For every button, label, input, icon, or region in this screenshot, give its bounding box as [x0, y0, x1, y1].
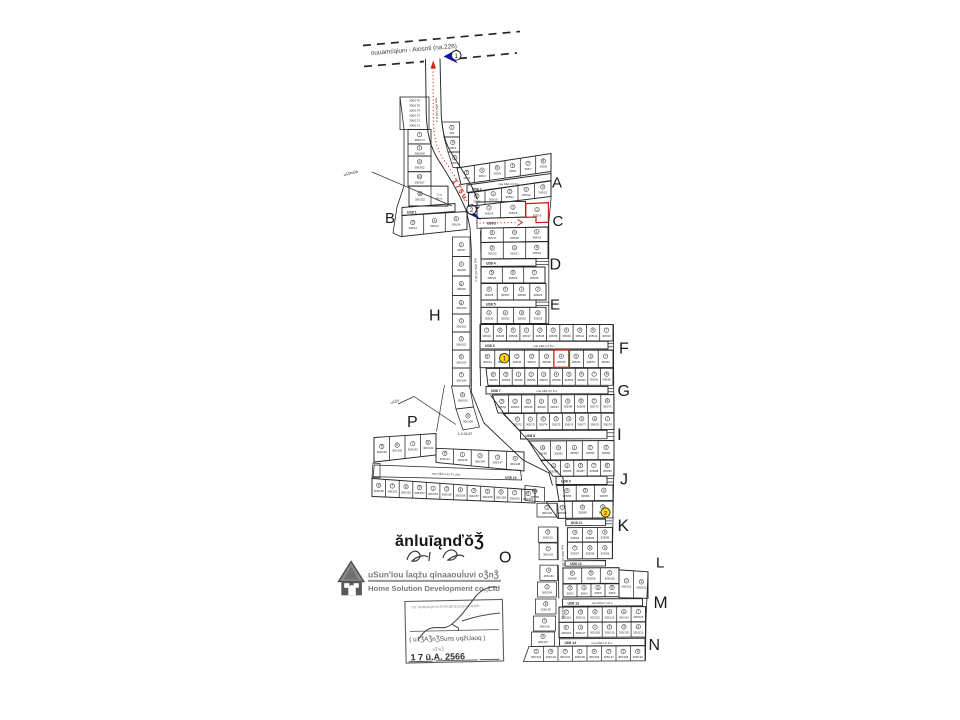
svg-text:5: 5 — [455, 217, 457, 221]
svg-text:1: 1 — [492, 192, 494, 196]
svg-text:5: 5 — [585, 489, 587, 493]
svg-text:UD8 11: UD8 11 — [571, 521, 582, 525]
svg-text:8: 8 — [492, 372, 494, 376]
svg-text:7: 7 — [564, 650, 566, 654]
svg-text:305/89: 305/89 — [603, 469, 612, 473]
svg-text:305/113: 305/113 — [605, 615, 615, 619]
svg-text:6: 6 — [603, 488, 605, 492]
svg-text:8: 8 — [571, 571, 573, 575]
svg-text:305/126: 305/126 — [589, 655, 600, 659]
svg-text:305/89: 305/89 — [578, 511, 587, 515]
svg-text:7: 7 — [607, 417, 609, 421]
svg-text:305/119: 305/119 — [605, 631, 615, 635]
svg-text:8: 8 — [460, 301, 462, 305]
svg-text:UD8 12: UD8 12 — [570, 562, 582, 566]
svg-text:5: 5 — [575, 354, 577, 358]
svg-text:305/112: 305/112 — [590, 616, 600, 620]
svg-text:305/84: 305/84 — [602, 451, 611, 455]
svg-text:305/36: 305/36 — [509, 334, 518, 338]
svg-text:1: 1 — [419, 146, 421, 150]
svg-text:305/83: 305/83 — [586, 451, 595, 455]
svg-text:7: 7 — [608, 650, 610, 654]
svg-text:306/104: 306/104 — [456, 379, 467, 383]
svg-text:1: 1 — [451, 126, 453, 130]
svg-text:nuu AftA.: nuu AftA. — [561, 607, 565, 620]
svg-text:4: 4 — [514, 456, 516, 460]
svg-text:UD8 7: UD8 7 — [491, 389, 501, 393]
svg-text:1: 1 — [536, 230, 538, 234]
svg-text:9: 9 — [467, 414, 469, 418]
svg-text:4: 4 — [481, 168, 483, 172]
svg-text:4: 4 — [566, 328, 568, 332]
svg-text:306/146: 306/146 — [475, 459, 486, 463]
svg-text:6: 6 — [581, 372, 583, 376]
svg-text:9: 9 — [514, 230, 516, 234]
svg-text:4: 4 — [452, 141, 454, 145]
svg-text:306/144: 306/144 — [440, 457, 451, 461]
svg-text:305/125: 305/125 — [575, 655, 586, 659]
svg-text:3: 3 — [497, 455, 499, 459]
svg-text:305/55: 305/55 — [514, 378, 523, 382]
svg-text:P: P — [407, 414, 418, 431]
svg-text:9: 9 — [419, 486, 421, 490]
svg-text:4: 4 — [593, 650, 595, 654]
svg-text:UD8 13: UD8 13 — [568, 601, 580, 605]
svg-text:8: 8 — [488, 287, 490, 291]
svg-text:305/10: 305/10 — [489, 197, 498, 201]
svg-text:1: 1 — [574, 446, 576, 450]
svg-text:nuu AftA.n31 6 u.: nuu AftA.n31 6 u. — [434, 98, 439, 123]
svg-text:3: 3 — [623, 625, 625, 629]
svg-text:2: 2 — [609, 625, 611, 629]
svg-text:305/5: 305/5 — [595, 591, 602, 595]
svg-text:306/158: 306/158 — [482, 495, 493, 499]
svg-text:UD8 9: UD8 9 — [561, 479, 571, 483]
svg-text:305/69: 305/69 — [577, 405, 586, 409]
svg-text:1: 1 — [518, 372, 520, 376]
svg-text:7: 7 — [514, 491, 516, 495]
svg-text:7: 7 — [412, 442, 414, 446]
svg-text:306/154: 306/154 — [428, 492, 439, 496]
svg-text:8: 8 — [527, 492, 529, 496]
svg-text:5: 5 — [460, 355, 462, 359]
svg-text:305/101: 305/101 — [621, 585, 632, 589]
svg-text:305/15: 305/15 — [509, 211, 518, 215]
svg-text:2: 2 — [539, 328, 541, 332]
svg-text:306/153: 306/153 — [414, 491, 425, 495]
svg-text:nuu AftA.n'i'i 8 u.: nuu AftA.n'i'i 8 u. — [533, 344, 555, 348]
svg-text:305/24: 305/24 — [509, 276, 518, 280]
svg-text:9: 9 — [512, 328, 514, 332]
svg-text:305/77: 305/77 — [578, 422, 587, 426]
svg-text:E: E — [550, 297, 560, 314]
svg-text:8: 8 — [589, 546, 591, 550]
svg-text:UD8 3: UD8 3 — [487, 222, 496, 226]
svg-text:305/32: 305/32 — [517, 316, 526, 320]
svg-text:2: 2 — [479, 454, 481, 458]
svg-text:305/29: 305/29 — [534, 293, 543, 297]
svg-text:9: 9 — [517, 417, 519, 421]
svg-text:6: 6 — [580, 399, 582, 403]
svg-text:305/4: 305/4 — [479, 174, 486, 178]
svg-text:4: 4 — [560, 354, 562, 358]
svg-text:305/98: 305/98 — [586, 552, 595, 556]
svg-text:306/14: 306/14 — [452, 222, 461, 226]
svg-text:O: O — [499, 550, 511, 567]
svg-text:9: 9 — [505, 287, 507, 291]
svg-text:5: 5 — [581, 417, 583, 421]
svg-text:306/132: 306/132 — [543, 552, 554, 556]
svg-text:9: 9 — [419, 160, 421, 164]
svg-text:306/100: 306/100 — [456, 306, 467, 310]
svg-text:305/52: 305/52 — [601, 360, 610, 364]
svg-text:4: 4 — [542, 185, 544, 189]
svg-text:305/66: 305/66 — [537, 405, 546, 409]
svg-text:306/173: 306/173 — [409, 114, 420, 118]
svg-text:305/65: 305/65 — [524, 405, 533, 409]
svg-text:J: J — [620, 472, 628, 489]
svg-text:305/96: 305/96 — [601, 536, 610, 540]
svg-text:306/176: 306/176 — [409, 99, 420, 103]
svg-text:2: 2 — [531, 354, 533, 358]
svg-text:2: 2 — [537, 287, 539, 291]
svg-text:1: 1 — [579, 650, 581, 654]
svg-text:306/136: 306/136 — [539, 625, 550, 629]
svg-text:4: 4 — [555, 372, 557, 376]
svg-text:305/95: 305/95 — [586, 536, 595, 540]
svg-text:306/151: 306/151 — [387, 490, 398, 494]
svg-text:nuu AftA.n'i'i 8 u.: nuu AftA.n'i'i 8 u. — [498, 182, 520, 186]
svg-text:305/42: 305/42 — [589, 334, 598, 338]
svg-text:306/97: 306/97 — [457, 248, 466, 252]
svg-text:A: A — [552, 175, 562, 192]
svg-text:306/157: 306/157 — [414, 180, 425, 184]
svg-text:306/150: 306/150 — [374, 489, 385, 493]
svg-text:305/123: 305/123 — [546, 655, 557, 659]
svg-text:1: 1 — [622, 650, 624, 654]
svg-text:305/56: 305/56 — [527, 378, 536, 382]
svg-text:2: 2 — [530, 372, 532, 376]
svg-text:305/68: 305/68 — [564, 405, 573, 409]
svg-text:8: 8 — [607, 399, 609, 403]
svg-text:1: 1 — [460, 319, 462, 323]
svg-text:305/31: 305/31 — [501, 316, 510, 320]
svg-text:5: 5 — [566, 464, 568, 468]
svg-text:7: 7 — [574, 546, 576, 550]
svg-text:6: 6 — [396, 443, 398, 447]
svg-text:2: 2 — [470, 207, 474, 214]
svg-text:305/73: 305/73 — [526, 423, 535, 427]
svg-text:D: D — [550, 257, 562, 274]
svg-text:7: 7 — [486, 328, 488, 332]
svg-text:7: 7 — [561, 505, 563, 509]
svg-text:305/70: 305/70 — [590, 405, 599, 409]
svg-text:306/147: 306/147 — [493, 461, 504, 465]
svg-text:305/102: 305/102 — [636, 586, 647, 590]
svg-text:305/120: 305/120 — [619, 631, 630, 635]
svg-text:305/21: 305/21 — [510, 251, 519, 255]
svg-text:306/103: 306/103 — [456, 361, 467, 365]
svg-text:9: 9 — [505, 372, 507, 376]
svg-text:306/134: 306/134 — [542, 591, 553, 595]
svg-text:7: 7 — [460, 373, 462, 377]
svg-text:1: 1 — [488, 206, 490, 210]
svg-text:306/157: 306/157 — [469, 494, 480, 498]
svg-text:nuu AftA.n3 18 u.: nuu AftA.n3 18 u. — [561, 545, 566, 570]
svg-text:9: 9 — [444, 452, 446, 456]
svg-text:7: 7 — [544, 619, 546, 623]
svg-text:306/171: 306/171 — [409, 124, 420, 128]
svg-text:306/159: 306/159 — [496, 496, 507, 500]
svg-text:305/122: 305/122 — [531, 655, 542, 659]
svg-text:305/62: 305/62 — [602, 378, 611, 382]
svg-text:7: 7 — [533, 271, 535, 275]
svg-text:7: 7 — [606, 328, 608, 332]
svg-text:UD8 14: UD8 14 — [565, 641, 577, 645]
svg-text:9: 9 — [558, 446, 560, 450]
svg-text:6: 6 — [580, 464, 582, 468]
svg-text:UD8 5: UD8 5 — [486, 302, 496, 306]
svg-text:1: 1 — [516, 354, 518, 358]
svg-text:305/57: 305/57 — [539, 378, 548, 382]
svg-text:4: 4 — [548, 568, 550, 572]
svg-text:305/75: 305/75 — [552, 423, 561, 427]
svg-text:305/82: 305/82 — [570, 451, 579, 455]
svg-text:1: 1 — [432, 486, 434, 490]
svg-text:305/37: 305/37 — [522, 334, 531, 338]
svg-text:306/13: 306/13 — [430, 224, 439, 228]
svg-text:306/156: 306/156 — [455, 493, 466, 497]
svg-text:306/168: 306/168 — [414, 152, 425, 156]
svg-text:305/71: 305/71 — [603, 405, 612, 409]
svg-text:305/116: 305/116 — [561, 631, 571, 635]
svg-text:B: B — [385, 210, 395, 227]
svg-text:305/6: 305/6 — [509, 169, 516, 173]
svg-text:8: 8 — [542, 446, 544, 450]
svg-text:305/39: 305/39 — [549, 334, 558, 338]
svg-text:306/161: 306/161 — [523, 497, 534, 501]
svg-text:7: 7 — [527, 161, 529, 165]
svg-text:2: 2 — [604, 511, 607, 517]
svg-text:2: 2 — [547, 530, 549, 534]
svg-text:6: 6 — [611, 586, 613, 590]
svg-text:6: 6 — [460, 282, 462, 286]
svg-text:ănluīąnďŏǮ: ănluīąnďŏǮ — [395, 530, 484, 550]
svg-text:305/127: 305/127 — [604, 655, 615, 659]
svg-text:8: 8 — [405, 485, 407, 489]
svg-text:1: 1 — [546, 506, 548, 510]
svg-text:1: 1 — [529, 417, 531, 421]
svg-text:4: 4 — [434, 219, 436, 223]
svg-text:H: H — [429, 308, 441, 325]
svg-text:305/54: 305/54 — [502, 378, 511, 382]
svg-text:305/41: 305/41 — [576, 334, 585, 338]
svg-text:6: 6 — [604, 530, 606, 534]
svg-text:I: I — [617, 425, 622, 444]
svg-text:4: 4 — [554, 399, 556, 403]
svg-text:305/58: 305/58 — [552, 378, 561, 382]
svg-text:305/129: 305/129 — [633, 655, 644, 659]
svg-text:nuu AftA.n'i'i 8 u.: nuu AftA.n'i'i 8 u. — [592, 641, 614, 645]
svg-text:1: 1 — [536, 208, 538, 212]
svg-text:L: L — [656, 555, 664, 572]
svg-text:305/35: 305/35 — [496, 334, 505, 338]
svg-text:2: 2 — [527, 399, 529, 403]
svg-text:305/98: 305/98 — [568, 577, 577, 581]
svg-text:305/64: 305/64 — [511, 405, 520, 409]
svg-text:305/124: 305/124 — [560, 655, 571, 659]
svg-text:305/67: 305/67 — [550, 405, 559, 409]
svg-text:305/18: 305/18 — [510, 236, 519, 240]
svg-text:3: 3 — [569, 586, 571, 590]
svg-text:305/115: 305/115 — [633, 615, 643, 619]
svg-text:306/130: 306/130 — [542, 511, 553, 515]
svg-text:305/38: 305/38 — [536, 334, 545, 338]
svg-text:uSun'lou Īaqžu qīnaaouĺuvi oǮn: uSun'lou Īaqžu qīnaaouĺuvi oǮnǮ — [368, 569, 499, 580]
svg-text:305/12: 305/12 — [522, 193, 531, 197]
svg-text:N: N — [649, 637, 661, 654]
svg-text:3: 3 — [543, 372, 545, 376]
svg-text:5: 5 — [567, 399, 569, 403]
svg-text:305/51: 305/51 — [587, 360, 596, 364]
svg-text:1: 1 — [609, 571, 611, 575]
svg-text:305/49: 305/49 — [557, 360, 566, 364]
svg-text:UD8 4: UD8 4 — [486, 262, 496, 266]
svg-text:8: 8 — [542, 159, 544, 163]
svg-text:6: 6 — [545, 602, 547, 606]
svg-text:305/30: 305/30 — [485, 316, 494, 320]
svg-text:306/137: 306/137 — [538, 640, 549, 644]
svg-text:306/142: 306/142 — [408, 447, 419, 451]
svg-text:305/111: 305/111 — [576, 616, 586, 620]
svg-text:1: 1 — [514, 399, 516, 403]
svg-text:2: 2 — [446, 487, 448, 491]
svg-text:305/17: 305/17 — [488, 236, 497, 240]
svg-text:6: 6 — [378, 483, 380, 487]
svg-text:5: 5 — [597, 586, 599, 590]
svg-text:1: 1 — [454, 53, 458, 60]
svg-text:305/6: 305/6 — [609, 591, 616, 595]
svg-text:3: 3 — [541, 399, 543, 403]
svg-text:6: 6 — [594, 417, 596, 421]
svg-text:4: 4 — [594, 610, 596, 614]
svg-text:5: 5 — [579, 328, 581, 332]
svg-text:6: 6 — [512, 271, 514, 275]
svg-text:305/47: 305/47 — [527, 360, 536, 364]
svg-text:4: 4 — [574, 530, 576, 534]
svg-text:305/33: 305/33 — [534, 316, 543, 320]
svg-text:9: 9 — [501, 400, 503, 404]
svg-text:2: 2 — [460, 243, 462, 247]
svg-text:306/172: 306/172 — [409, 119, 420, 123]
svg-text:305/74: 305/74 — [539, 423, 548, 427]
svg-text:305/60: 305/60 — [577, 378, 586, 382]
svg-text:8: 8 — [427, 440, 429, 444]
svg-text:7: 7 — [605, 354, 607, 358]
svg-text:7: 7 — [547, 547, 549, 551]
svg-text:1: 1 — [462, 453, 464, 457]
svg-text:1: 1 — [626, 579, 628, 583]
svg-text:3: 3 — [580, 610, 582, 614]
svg-text:305/3: 305/3 — [567, 592, 574, 596]
svg-text:2: 2 — [454, 156, 456, 160]
svg-text:305/7: 305/7 — [525, 167, 532, 171]
svg-text:1-0-04.87: 1-0-04.87 — [458, 432, 473, 436]
svg-text:305/5: 305/5 — [494, 172, 501, 176]
svg-text:7: 7 — [593, 464, 595, 468]
svg-text:305/86: 305/86 — [581, 494, 590, 498]
svg-text:5: 5 — [496, 166, 498, 170]
svg-text:305/79: 305/79 — [603, 422, 612, 426]
svg-text:F: F — [619, 341, 629, 358]
svg-text:306/141: 306/141 — [392, 449, 403, 453]
svg-text:305/117: 305/117 — [576, 631, 586, 635]
svg-text:4: 4 — [566, 489, 568, 493]
svg-text:306/152: 306/152 — [401, 490, 412, 494]
svg-text:306/174: 306/174 — [414, 138, 425, 142]
svg-text:305/25: 305/25 — [530, 276, 539, 280]
svg-text:305/3: 305/3 — [463, 176, 470, 180]
svg-text:305/76: 305/76 — [565, 423, 574, 427]
svg-text:306/106: 306/106 — [463, 420, 474, 424]
svg-text:305/97: 305/97 — [571, 552, 580, 556]
svg-text:305/50: 305/50 — [572, 360, 581, 364]
svg-text:5: 5 — [568, 372, 570, 376]
svg-text:3: 3 — [488, 311, 490, 315]
svg-text:306/131: 306/131 — [543, 536, 554, 540]
svg-text:1 ls: 1 ls — [437, 193, 442, 197]
svg-text:5: 5 — [487, 489, 489, 493]
svg-text:306/152: 306/152 — [415, 197, 426, 201]
svg-text:305/46: 305/46 — [513, 360, 522, 364]
svg-text:9: 9 — [542, 635, 544, 639]
svg-text:4: 4 — [550, 650, 552, 654]
svg-text:nuu AftA.n3 18 u.: nuu AftA.n3 18 u. — [474, 258, 479, 283]
svg-text:305/128: 305/128 — [618, 655, 629, 659]
svg-text:306/12: 306/12 — [409, 226, 418, 230]
svg-text:10: 10 — [418, 175, 422, 179]
svg-text:2: 2 — [546, 585, 548, 589]
svg-text:305/14: 305/14 — [485, 212, 494, 216]
svg-text:4: 4 — [568, 417, 570, 421]
svg-text:306/102: 306/102 — [456, 343, 467, 347]
svg-text:306/145: 306/145 — [457, 458, 468, 462]
svg-text:2: 2 — [589, 446, 591, 450]
svg-text:306/174: 306/174 — [409, 109, 420, 113]
svg-text:305/87: 305/87 — [600, 494, 609, 498]
svg-text:306/133: 306/133 — [544, 574, 555, 578]
svg-text:8: 8 — [462, 393, 464, 397]
svg-text:3: 3 — [412, 221, 414, 225]
svg-text:5: 5 — [491, 271, 493, 275]
svg-text:UD8 8: UD8 8 — [526, 434, 536, 438]
svg-text:305/53: 305/53 — [489, 378, 498, 382]
svg-text:305/28: 305/28 — [517, 293, 526, 297]
svg-text:3: 3 — [459, 488, 461, 492]
svg-text:306/160: 306/160 — [510, 496, 521, 500]
svg-text:8: 8 — [565, 625, 567, 629]
svg-text:306/155: 306/155 — [442, 493, 453, 497]
svg-text:6: 6 — [592, 328, 594, 332]
svg-text:6: 6 — [500, 490, 502, 494]
svg-text:3: 3 — [546, 354, 548, 358]
svg-text:305/94: 305/94 — [571, 536, 580, 540]
svg-text:( u1ǮAǮnǮSuns uqžUaoq ): ( u1ǮAǮnǮSuns uqžUaoq ) — [409, 634, 486, 644]
svg-text:305/19: 305/19 — [533, 235, 542, 239]
svg-text:305/61: 305/61 — [590, 378, 599, 382]
svg-text:8: 8 — [499, 328, 501, 332]
svg-text:305/48: 305/48 — [542, 360, 551, 364]
